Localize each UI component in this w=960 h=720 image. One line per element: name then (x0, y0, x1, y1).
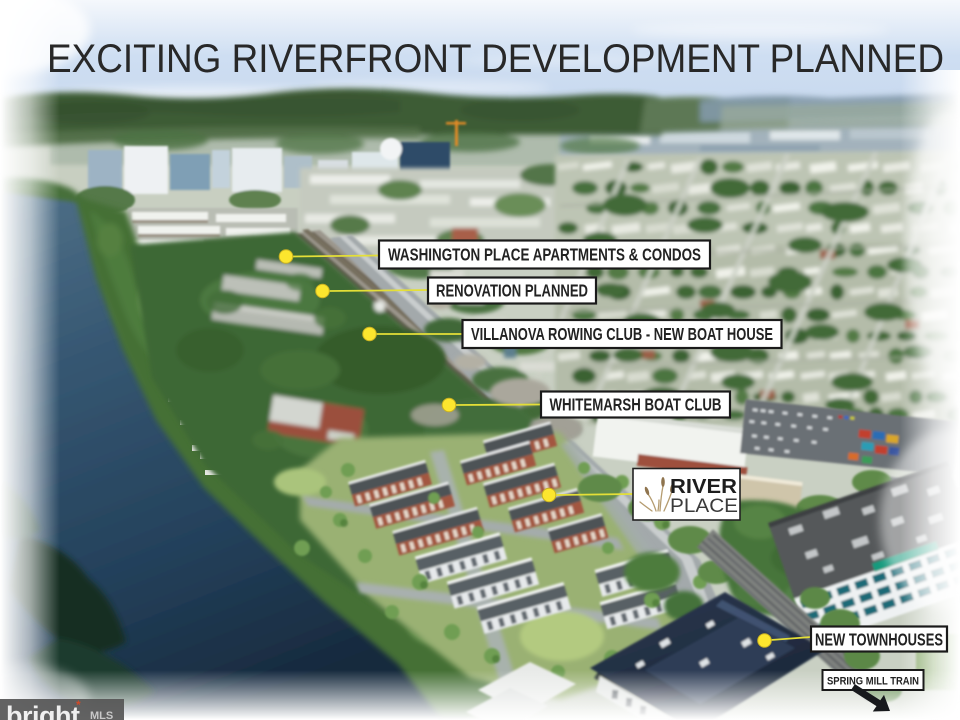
svg-text:MLS: MLS (90, 710, 113, 720)
svg-text:WHITEMARSH BOAT CLUB: WHITEMARSH BOAT CLUB (550, 395, 722, 415)
svg-text:NEW TOWNHOUSES: NEW TOWNHOUSES (815, 630, 943, 650)
svg-text:SPRING MILL TRAIN: SPRING MILL TRAIN (827, 676, 919, 688)
svg-text:bright: bright (6, 701, 80, 720)
svg-text:*: * (76, 698, 81, 712)
svg-text:VILLANOVA ROWING CLUB - NEW BO: VILLANOVA ROWING CLUB - NEW BOAT HOUSE (471, 324, 773, 344)
svg-text:RENOVATION PLANNED: RENOVATION PLANNED (436, 281, 588, 301)
svg-text:RIVER: RIVER (670, 476, 738, 498)
svg-text:PLACE: PLACE (670, 496, 738, 517)
svg-text:EXCITING RIVERFRONT DEVELOPMEN: EXCITING RIVERFRONT DEVELOPMENT PLANNED (47, 37, 944, 81)
svg-text:WASHINGTON PLACE APARTMENTS &: WASHINGTON PLACE APARTMENTS & CONDOS (388, 245, 701, 265)
